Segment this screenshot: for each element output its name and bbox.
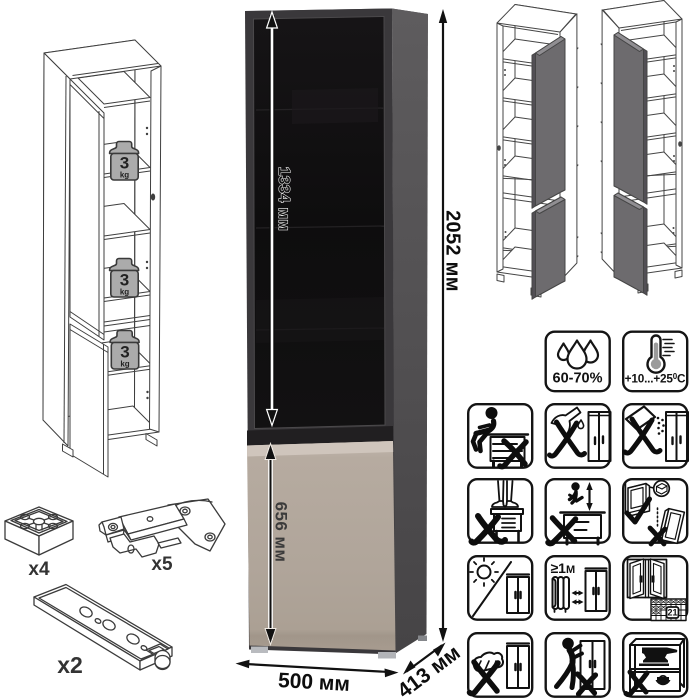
svg-text:656 мм: 656 мм [272, 502, 291, 563]
svg-text:x4: x4 [28, 559, 50, 580]
svg-text:60-70%: 60-70% [553, 371, 603, 387]
svg-text:kg: kg [120, 288, 129, 297]
svg-text:2052 мм: 2052 мм [442, 210, 464, 292]
svg-text:+10...+250C: +10...+250C [625, 372, 686, 386]
svg-text:413 мм: 413 мм [393, 641, 464, 700]
svg-text:21: 21 [667, 608, 677, 618]
svg-text:kg: kg [120, 360, 129, 369]
svg-text:1334 мм: 1334 мм [275, 167, 292, 232]
svg-text:x2: x2 [57, 652, 83, 678]
svg-text:x5: x5 [151, 554, 173, 575]
svg-text:500 мм: 500 мм [277, 669, 350, 696]
svg-text:kg: kg [120, 171, 129, 180]
